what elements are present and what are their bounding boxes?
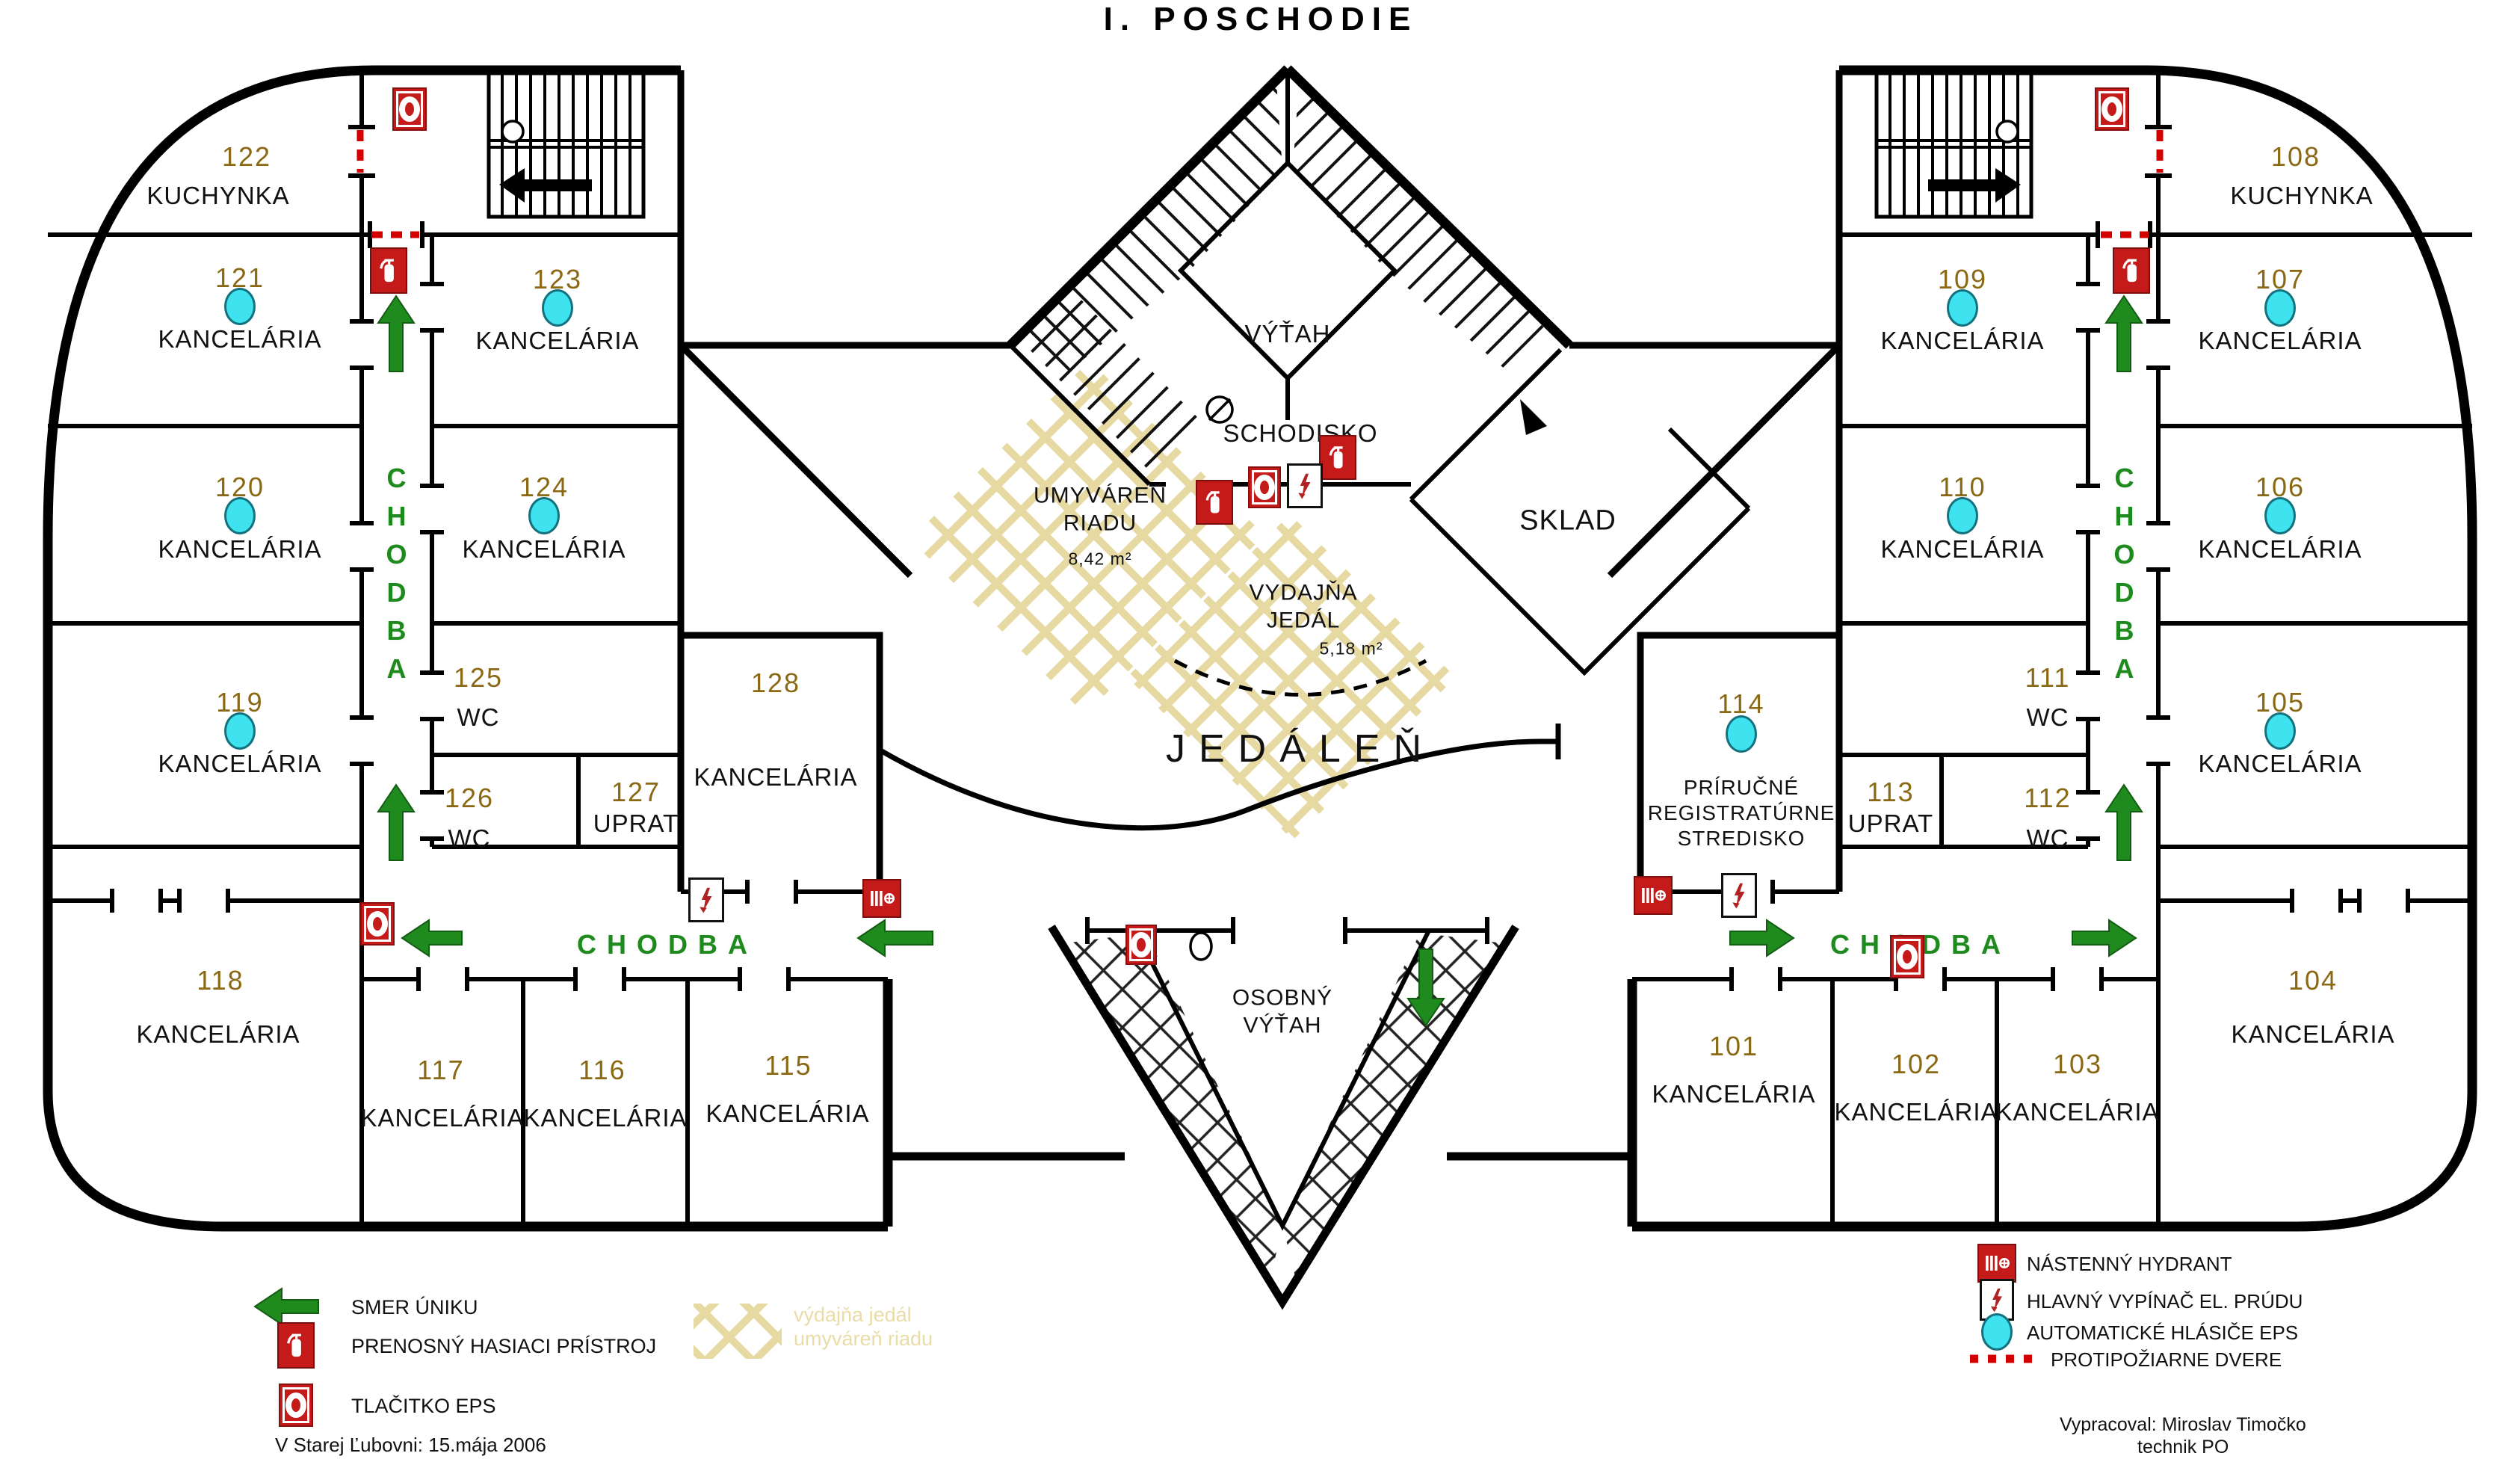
legend-dvere-label: PROTIPOŽIARNE DVERE (2051, 1348, 2282, 1372)
room-name-107: KANCELÁRIA (2198, 327, 2362, 355)
room-name-105: KANCELÁRIA (2198, 750, 2362, 778)
smoke-detector-dot (1947, 289, 1978, 327)
fire-extinguisher-icon (2113, 247, 2150, 294)
fire-extinguisher-icon (1319, 435, 1356, 480)
room-name-112: WC (2027, 824, 2069, 853)
legend-smoke-detector-dot (1981, 1313, 2013, 1351)
room-number-113: 113 (1867, 777, 1914, 808)
smoke-detector-dot (2264, 497, 2296, 534)
eps-button-icon (1248, 466, 1281, 508)
room-number-126: 126 (445, 783, 494, 814)
room-number-127: 127 (611, 777, 661, 808)
room-name-114: PRÍRUČNÉ REGISTRATÚRNE STREDISKO (1622, 775, 1861, 851)
main-switch-icon (1721, 873, 1757, 918)
room-number-104: 104 (2288, 965, 2338, 996)
escape-arrow-right (2072, 920, 2136, 956)
main-switch-icon (688, 877, 724, 922)
room-number-117: 117 (417, 1055, 464, 1086)
page-title: I. POSCHODIE (1104, 1, 1418, 38)
escape-arrow-up (2106, 296, 2142, 371)
room-name-126: WC (448, 824, 491, 853)
room-name-109: KANCELÁRIA (1880, 327, 2044, 355)
legend-hasiaci: PRENOSNÝ HASIACI PRÍSTROJ (351, 1335, 656, 1358)
room-name-123: KANCELÁRIA (475, 327, 639, 355)
smoke-detector-dot (2264, 289, 2296, 327)
eps-button-icon (392, 87, 427, 131)
watermark-line-1: výdajňa jedál (794, 1304, 912, 1327)
legend-fire-extinguisher-icon (277, 1322, 315, 1369)
room-name-110: KANCELÁRIA (1880, 535, 2044, 564)
room-name-120: KANCELÁRIA (158, 535, 321, 564)
room-name-116: KANCELÁRIA (523, 1104, 687, 1132)
room-name-115: KANCELÁRIA (705, 1099, 869, 1128)
smoke-detector-dot (1947, 497, 1978, 534)
room-number-118: 118 (197, 965, 244, 996)
room-number-108: 108 (2271, 141, 2320, 173)
legend-hydrant-icon (1977, 1244, 2016, 1283)
hydrant-icon (1634, 876, 1673, 915)
dishwashing-label: UMYVÁREŇ RIADU (1003, 482, 1197, 537)
stairwell-left (489, 73, 643, 217)
eps-button-icon (1890, 935, 1924, 978)
legend-hatch-sample (694, 1304, 782, 1359)
legend-escape-arrow (255, 1289, 318, 1324)
smoke-detector-dot (542, 289, 573, 327)
escape-arrow-left (402, 920, 462, 956)
author-line-1: Vypracoval: Miroslav Timočko (2060, 1414, 2306, 1436)
smoke-detector-dot (2264, 712, 2296, 750)
room-name-108: KUCHYNKA (2230, 182, 2373, 210)
room-number-111: 111 (2025, 662, 2071, 694)
room-number-102: 102 (1891, 1049, 1941, 1080)
legend-vypinac-label: HLAVNÝ VYPÍNAČ EL. PRÚDU (2027, 1290, 2303, 1313)
room-name-103: KANCELÁRIA (1995, 1098, 2159, 1126)
escape-arrow-up (2106, 785, 2142, 860)
author-line-2: technik PO (2137, 1437, 2229, 1458)
legend-tlacitko: TLAČITKO EPS (351, 1395, 496, 1418)
room-number-112: 112 (2024, 783, 2071, 814)
v-stairs-circle (1190, 933, 1211, 960)
room-name-118: KANCELÁRIA (136, 1020, 300, 1049)
corridor-label-left-vertical: CHODBA (380, 463, 412, 691)
fire-extinguisher-icon (1196, 480, 1233, 525)
room-number-115: 115 (765, 1050, 812, 1082)
legend-hydrant-label: NÁSTENNÝ HYDRANT (2027, 1253, 2232, 1276)
food-serving-area: 5,18 m² (1320, 639, 1383, 659)
room-number-103: 103 (2053, 1049, 2102, 1080)
smoke-detector-dot (1726, 715, 1757, 753)
escape-arrow-up (378, 785, 414, 860)
hydrant-icon (862, 879, 901, 918)
room-name-104: KANCELÁRIA (2231, 1020, 2394, 1049)
main-switch-icon (1287, 463, 1323, 508)
eps-button-icon (360, 902, 395, 946)
food-serving-label: VYDAJŇA JEDÁL (1210, 579, 1397, 634)
room-number-116: 116 (578, 1055, 626, 1086)
dining-hall-label: JEDÁLEŇ (1166, 727, 1435, 771)
dishwashing-area: 8,42 m² (1069, 549, 1132, 570)
escape-arrow-up (378, 296, 414, 371)
legend-eps-button-icon (279, 1384, 313, 1427)
smoke-detector-dot (224, 497, 256, 534)
room-name-127: UPRAT (593, 809, 679, 838)
legend-date: V Starej Ľubovni: 15.mája 2006 (275, 1434, 546, 1457)
room-name-117: KANCELÁRIA (360, 1104, 524, 1132)
eps-button-icon (1125, 925, 1157, 965)
room-name-128: KANCELÁRIA (694, 763, 857, 792)
watermark-line-2: umyváreň riadu (794, 1327, 933, 1351)
room-name-124: KANCELÁRIA (462, 535, 626, 564)
smoke-detector-dot (224, 712, 256, 750)
room-name-102: KANCELÁRIA (1834, 1098, 1998, 1126)
room-name-101: KANCELÁRIA (1652, 1080, 1815, 1108)
room-number-125: 125 (454, 662, 503, 694)
storage-label: SKLAD (1519, 505, 1616, 537)
smoke-detector-dot (528, 497, 560, 534)
legend-hlasice-label: AUTOMATICKÉ HLÁSIČE EPS (2027, 1321, 2298, 1345)
room-number-122: 122 (222, 141, 271, 173)
floor-plan: I. POSCHODIE 122 KUCHYNKA 121 KANCELÁRIA… (0, 0, 2520, 1459)
room-name-106: KANCELÁRIA (2198, 535, 2362, 564)
room-name-122: KUCHYNKA (146, 182, 289, 210)
escape-arrow-right (1730, 920, 1794, 956)
smoke-detector-dot (224, 288, 256, 325)
personal-elevator-label: OSOBNÝ VÝŤAH (1196, 984, 1368, 1039)
room-number-128: 128 (751, 667, 800, 699)
escape-arrow-left (858, 920, 933, 956)
room-name-111: WC (2027, 703, 2069, 732)
room-name-121: KANCELÁRIA (158, 325, 321, 354)
corridor-label-left: CHODBA (577, 929, 758, 960)
elevator-label: VÝŤAH (1244, 320, 1330, 348)
legend-smer-uniku: SMER ÚNIKU (351, 1296, 478, 1319)
corridor-label-right-vertical: CHODBA (2108, 463, 2140, 691)
room-number-101: 101 (1709, 1031, 1758, 1062)
eps-button-icon (2095, 87, 2129, 131)
room-name-125: WC (457, 703, 500, 732)
stairwell-right (1877, 73, 2031, 217)
room-name-119: KANCELÁRIA (158, 750, 321, 778)
fire-extinguisher-icon (370, 247, 407, 294)
